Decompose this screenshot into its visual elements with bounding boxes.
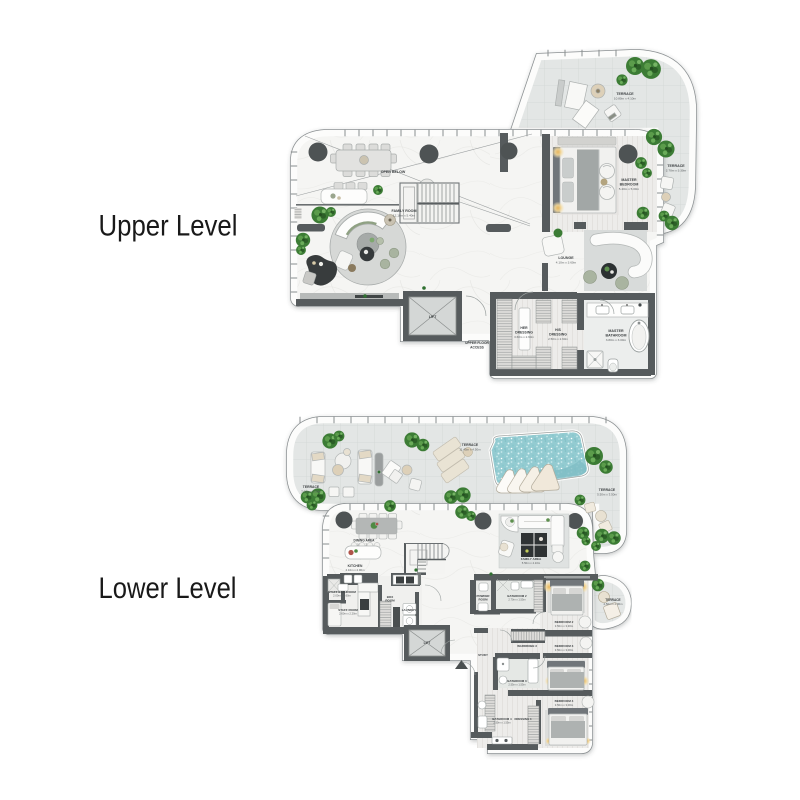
svg-text:ROOM: ROOM [479, 598, 489, 602]
svg-text:WARDROBE 3: WARDROBE 3 [517, 644, 537, 648]
svg-text:Lower Level: Lower Level [99, 572, 237, 605]
svg-text:2.00m x 1.60m: 2.00m x 1.60m [333, 594, 352, 598]
svg-text:STAFF ROOM: STAFF ROOM [338, 608, 358, 612]
svg-text:DRESSING 4: DRESSING 4 [515, 717, 532, 721]
svg-text:HER: HER [520, 326, 528, 330]
svg-text:4.10m x 2.90m: 4.10m x 2.90m [345, 568, 365, 572]
svg-text:3.60m x 2.60m: 3.60m x 2.60m [514, 335, 534, 339]
svg-text:ACCESS: ACCESS [470, 345, 485, 349]
svg-text:3.50m x 3.00m: 3.50m x 3.00m [555, 703, 574, 707]
svg-text:HIS: HIS [555, 328, 561, 332]
svg-text:2.70m x 3.30m: 2.70m x 3.30m [666, 169, 687, 173]
svg-text:DRESSING: DRESSING [549, 333, 567, 337]
svg-text:BATHROOM 2: BATHROOM 2 [507, 594, 527, 598]
svg-text:3.80m x 3.00m: 3.80m x 3.00m [606, 338, 627, 342]
svg-text:MASTER: MASTER [621, 178, 637, 182]
svg-text:OPEN BELOW: OPEN BELOW [381, 170, 406, 174]
svg-text:BATHROOM: BATHROOM [606, 334, 627, 338]
svg-text:5.50m x 4.10m: 5.50m x 4.10m [522, 561, 541, 565]
svg-text:LAUNDRY: LAUNDRY [402, 608, 417, 612]
svg-text:12.10m x 5.40m: 12.10m x 5.40m [393, 214, 416, 218]
svg-text:LIFT: LIFT [424, 641, 431, 645]
svg-text:2.60m x 2.20m: 2.60m x 2.20m [339, 612, 358, 616]
svg-text:5.50m x 3.50m: 5.50m x 3.50m [597, 492, 617, 496]
svg-text:7.00m x 3.50m: 7.00m x 3.50m [301, 489, 321, 493]
svg-text:MASTER: MASTER [608, 329, 624, 333]
svg-text:LOUNGE: LOUNGE [558, 256, 574, 260]
svg-text:4.10m x 3.60m: 4.10m x 3.60m [556, 261, 577, 265]
svg-text:5.40m x 5.00m: 5.40m x 5.00m [619, 187, 640, 191]
svg-text:2.50m x 2.60m: 2.50m x 2.60m [548, 337, 568, 341]
svg-text:2.50m x 1.55m: 2.50m x 1.55m [493, 721, 510, 725]
svg-text:ROOM: ROOM [385, 599, 395, 603]
svg-text:Upper Level: Upper Level [99, 210, 238, 243]
svg-text:FAMILY ROOM: FAMILY ROOM [392, 209, 417, 213]
svg-text:3.50m x 3.00m: 3.50m x 3.00m [555, 648, 574, 652]
svg-text:10.80m x 4.10m: 10.80m x 4.10m [614, 97, 637, 101]
svg-text:BATHROOM 4: BATHROOM 4 [492, 717, 512, 721]
svg-text:BEDROOM: BEDROOM [620, 183, 639, 187]
svg-text:TERRACE: TERRACE [616, 92, 634, 96]
svg-text:DRESSING: DRESSING [515, 331, 533, 335]
svg-text:LIFT: LIFT [429, 315, 437, 319]
svg-text:2.55m x 1.55m: 2.55m x 1.55m [508, 683, 525, 687]
svg-text:2.50m x 2.00m: 2.50m x 2.00m [603, 602, 623, 606]
svg-text:3.50m x 3.30m: 3.50m x 3.30m [555, 624, 574, 628]
svg-text:2.70m x 1.55m: 2.70m x 1.55m [508, 598, 525, 602]
svg-text:TERRACE: TERRACE [667, 164, 685, 168]
svg-text:STUDY: STUDY [478, 653, 488, 657]
svg-text:11.45m x 4.50m: 11.45m x 4.50m [459, 447, 481, 451]
svg-text:STAFF BATHROOM: STAFF BATHROOM [328, 590, 356, 594]
svg-text:BATHROOM 3: BATHROOM 3 [507, 679, 527, 683]
